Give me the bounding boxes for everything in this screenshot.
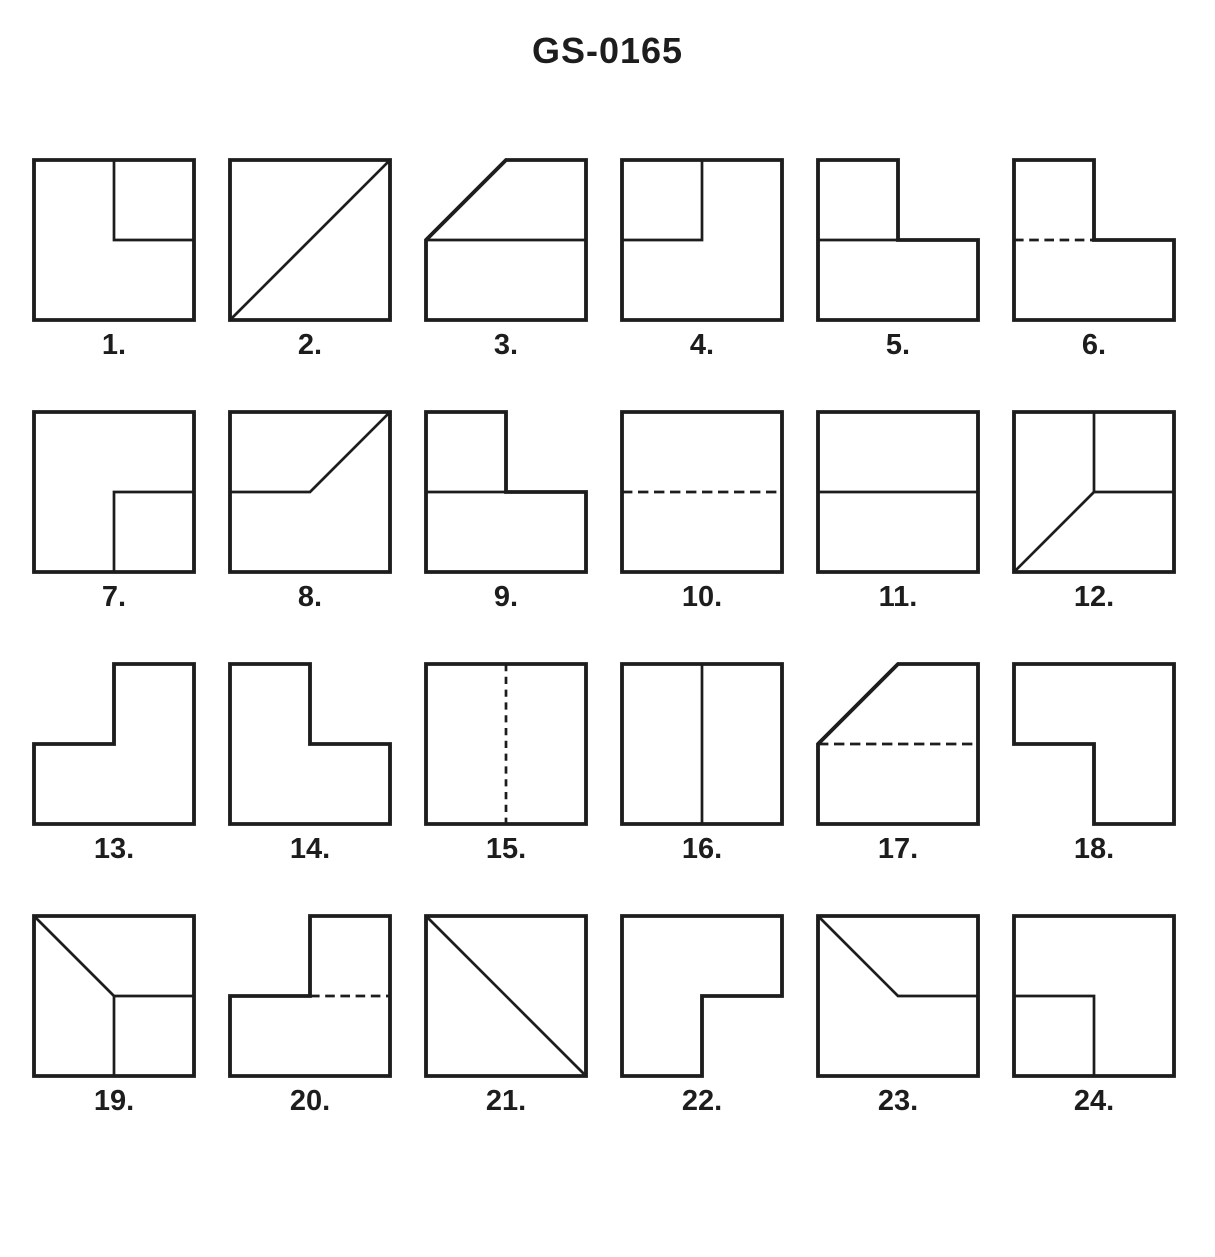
figure-label: 23.	[878, 1085, 918, 1118]
figure-label: 6.	[1082, 329, 1106, 362]
figure-canvas	[226, 408, 394, 576]
figure-label: 17.	[878, 833, 918, 866]
figure-cell: 2.	[226, 156, 394, 362]
figure-cell: 16.	[618, 660, 786, 866]
figure-cell: 17.	[814, 660, 982, 866]
figure-label: 1.	[102, 329, 126, 362]
figure-cell: 7.	[30, 408, 198, 614]
figure-canvas	[618, 660, 786, 828]
figure-canvas	[1010, 912, 1178, 1080]
figure-canvas	[1010, 408, 1178, 576]
figure-label: 2.	[298, 329, 322, 362]
figure-cell: 1.	[30, 156, 198, 362]
figure-canvas	[30, 408, 198, 576]
figure-label: 7.	[102, 581, 126, 614]
figure-cell: 8.	[226, 408, 394, 614]
figure-canvas	[814, 660, 982, 828]
figure-canvas	[1010, 660, 1178, 828]
figure-canvas	[422, 408, 590, 576]
figure-label: 20.	[290, 1085, 330, 1118]
figure-canvas	[422, 660, 590, 828]
figure-label: 14.	[290, 833, 330, 866]
figure-cell: 13.	[30, 660, 198, 866]
figure-outline	[34, 664, 194, 824]
figure-canvas	[618, 408, 786, 576]
figure-canvas	[226, 912, 394, 1080]
figure-label: 12.	[1074, 581, 1114, 614]
figure-label: 16.	[682, 833, 722, 866]
worksheet-page: GS-0165 1.2.3.4.5.6.7.8.9.10.11.12.13.14…	[0, 0, 1215, 1257]
figure-cell: 20.	[226, 912, 394, 1118]
figure-outline	[1014, 664, 1174, 824]
figure-grid: 1.2.3.4.5.6.7.8.9.10.11.12.13.14.15.16.1…	[0, 156, 1215, 1118]
figure-label: 19.	[94, 1085, 134, 1118]
figure-outline	[230, 664, 390, 824]
figure-label: 11.	[879, 581, 918, 614]
figure-cell: 21.	[422, 912, 590, 1118]
figure-cell: 18.	[1010, 660, 1178, 866]
figure-cell: 14.	[226, 660, 394, 866]
figure-cell: 5.	[814, 156, 982, 362]
figure-canvas	[30, 156, 198, 324]
page-title: GS-0165	[0, 0, 1215, 72]
figure-cell: 4.	[618, 156, 786, 362]
figure-canvas	[814, 408, 982, 576]
figure-label: 21.	[486, 1085, 526, 1118]
figure-label: 4.	[690, 329, 714, 362]
figure-cell: 22.	[618, 912, 786, 1118]
figure-label: 24.	[1074, 1085, 1114, 1118]
figure-cell: 24.	[1010, 912, 1178, 1118]
figure-label: 22.	[682, 1085, 722, 1118]
figure-canvas	[814, 912, 982, 1080]
figure-canvas	[422, 912, 590, 1080]
figure-label: 9.	[494, 581, 518, 614]
figure-canvas	[814, 156, 982, 324]
figure-cell: 15.	[422, 660, 590, 866]
figure-label: 3.	[494, 329, 518, 362]
figure-label: 5.	[886, 329, 910, 362]
figure-cell: 11.	[814, 408, 982, 614]
figure-label: 15.	[486, 833, 526, 866]
figure-canvas	[30, 660, 198, 828]
figure-canvas	[226, 156, 394, 324]
figure-cell: 9.	[422, 408, 590, 614]
figure-label: 18.	[1074, 833, 1114, 866]
figure-canvas	[1010, 156, 1178, 324]
figure-canvas	[618, 912, 786, 1080]
figure-cell: 6.	[1010, 156, 1178, 362]
figure-cell: 3.	[422, 156, 590, 362]
figure-canvas	[30, 912, 198, 1080]
figure-cell: 23.	[814, 912, 982, 1118]
figure-label: 13.	[94, 833, 134, 866]
figure-canvas	[226, 660, 394, 828]
figure-label: 8.	[298, 581, 322, 614]
figure-outline	[622, 916, 782, 1076]
figure-cell: 10.	[618, 408, 786, 614]
figure-canvas	[618, 156, 786, 324]
figure-canvas	[422, 156, 590, 324]
figure-label: 10.	[682, 581, 722, 614]
figure-cell: 19.	[30, 912, 198, 1118]
figure-cell: 12.	[1010, 408, 1178, 614]
